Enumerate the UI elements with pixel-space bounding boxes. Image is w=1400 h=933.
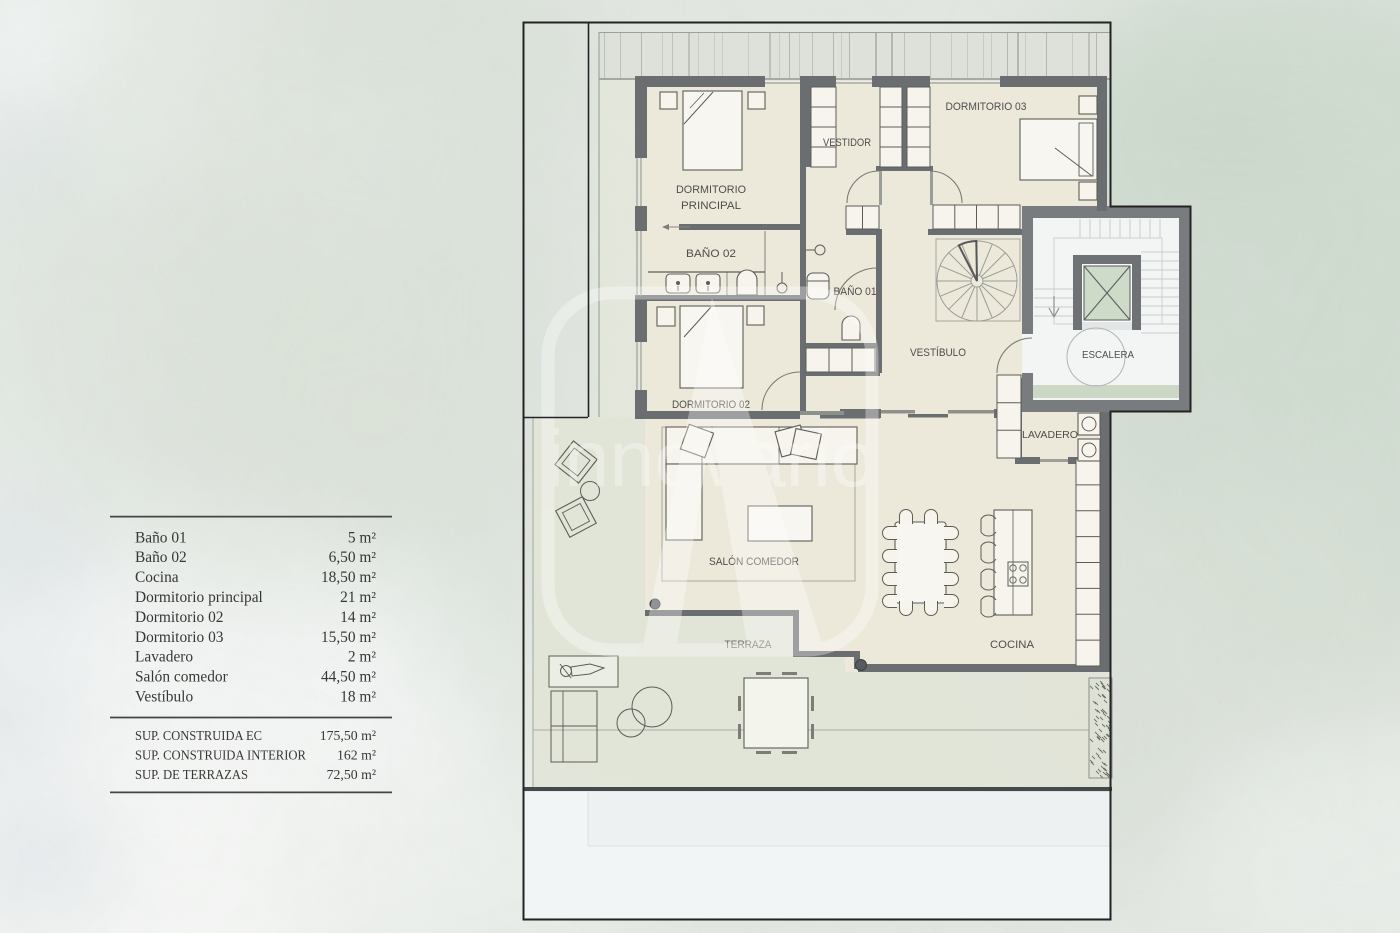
svg-text:Dormitorio 02: Dormitorio 02 bbox=[135, 609, 224, 626]
svg-text:BAÑO 02: BAÑO 02 bbox=[686, 247, 736, 260]
svg-text:175,50 m²: 175,50 m² bbox=[320, 728, 376, 743]
svg-text:DORMITORIO 03: DORMITORIO 03 bbox=[946, 101, 1027, 113]
svg-text:PRINCIPAL: PRINCIPAL bbox=[681, 200, 741, 212]
svg-text:6,50 m²: 6,50 m² bbox=[329, 549, 377, 566]
svg-text:Dormitorio 03: Dormitorio 03 bbox=[135, 629, 224, 646]
svg-text:2 m²: 2 m² bbox=[348, 649, 377, 666]
svg-text:LAVADERO: LAVADERO bbox=[1022, 430, 1078, 441]
svg-text:SUP. DE TERRAZAS: SUP. DE TERRAZAS bbox=[135, 767, 248, 782]
svg-text:Salón comedor: Salón comedor bbox=[135, 669, 228, 686]
svg-text:21 m²: 21 m² bbox=[340, 589, 376, 606]
svg-text:72,50 m²: 72,50 m² bbox=[327, 767, 376, 782]
svg-text:Cocina: Cocina bbox=[135, 569, 179, 586]
svg-text:44,50 m²: 44,50 m² bbox=[321, 669, 376, 686]
svg-text:18 m²: 18 m² bbox=[340, 689, 376, 706]
svg-text:Baño 02: Baño 02 bbox=[135, 549, 187, 566]
svg-text:162 m²: 162 m² bbox=[337, 748, 376, 763]
svg-text:14 m²: 14 m² bbox=[340, 609, 376, 626]
svg-text:Dormitorio principal: Dormitorio principal bbox=[135, 589, 263, 606]
svg-text:5 m²: 5 m² bbox=[348, 529, 377, 546]
svg-text:Vestíbulo: Vestíbulo bbox=[135, 689, 193, 706]
svg-text:innovario: innovario bbox=[546, 414, 876, 503]
svg-text:COCINA: COCINA bbox=[990, 639, 1035, 651]
svg-text:ESCALERA: ESCALERA bbox=[1082, 350, 1134, 361]
svg-text:VESTÍBULO: VESTÍBULO bbox=[910, 346, 966, 359]
svg-text:DORMITORIO: DORMITORIO bbox=[676, 184, 746, 196]
svg-text:Lavadero: Lavadero bbox=[135, 649, 193, 666]
svg-text:SUP. CONSTRUIDA INTERIOR: SUP. CONSTRUIDA INTERIOR bbox=[135, 748, 307, 763]
svg-text:15,50 m²: 15,50 m² bbox=[321, 629, 376, 646]
svg-text:VESTIDOR: VESTIDOR bbox=[823, 137, 871, 149]
svg-text:18,50 m²: 18,50 m² bbox=[321, 569, 376, 586]
svg-text:Baño 01: Baño 01 bbox=[135, 529, 187, 546]
svg-text:SUP. CONSTRUIDA EC: SUP. CONSTRUIDA EC bbox=[135, 728, 262, 743]
